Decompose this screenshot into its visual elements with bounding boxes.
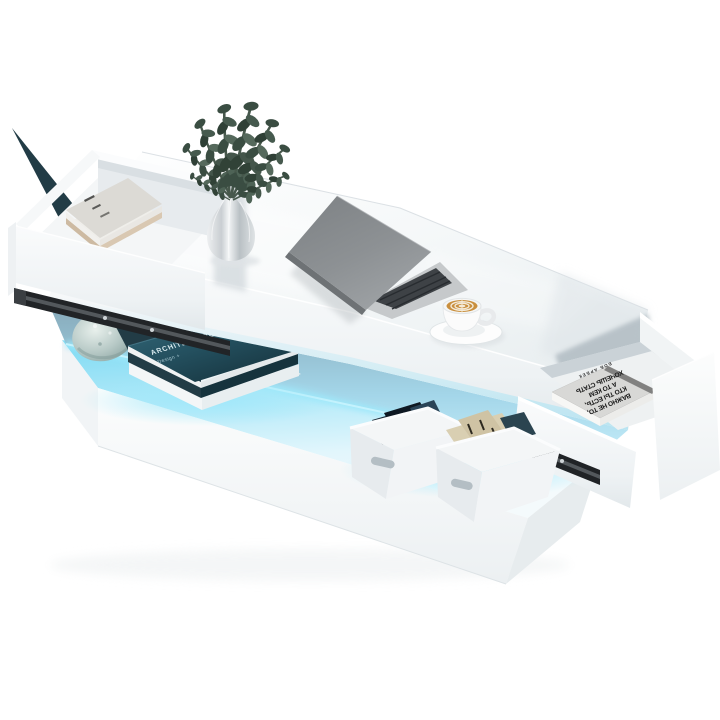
coffee-table-scene: ARCHITECTURE Design + bbox=[0, 0, 720, 720]
rail-screw bbox=[150, 328, 154, 332]
product-photo: ARCHITECTURE Design + bbox=[0, 0, 720, 720]
rail-screw bbox=[560, 459, 564, 463]
rail-end-cap bbox=[14, 288, 26, 306]
rail-screw bbox=[103, 316, 107, 320]
left-drawer-end-panel bbox=[8, 222, 16, 296]
